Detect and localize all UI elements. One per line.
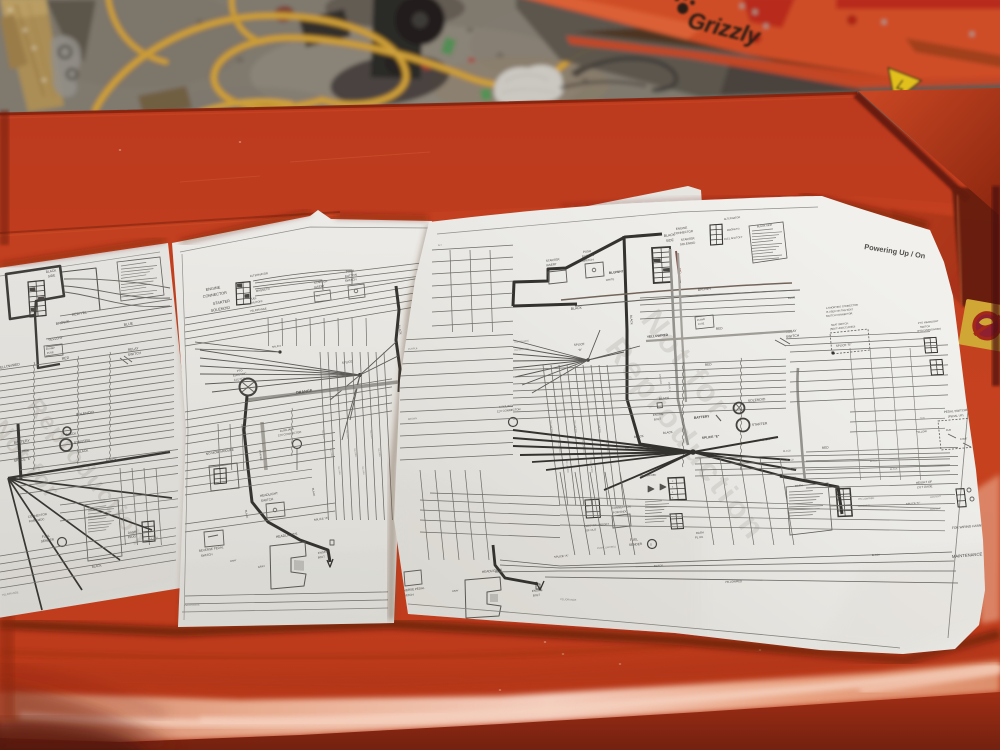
svg-text:BLACK: BLACK <box>890 467 898 471</box>
svg-text:"D": "D" <box>578 348 582 352</box>
svg-text:BOLT: BOLT <box>533 593 541 598</box>
svg-text:BLACK: BLACK <box>789 467 798 471</box>
svg-text:RED: RED <box>822 445 830 450</box>
svg-text:RUN: RUN <box>946 429 952 432</box>
svg-text:BLACK: BLACK <box>872 553 880 557</box>
svg-text:BLACK: BLACK <box>629 315 634 325</box>
svg-text:BLACK: BLACK <box>787 475 797 480</box>
svg-text:PL UG: PL UG <box>695 535 704 540</box>
svg-text:BLACK: BLACK <box>654 563 664 568</box>
svg-text:BLACK: BLACK <box>783 449 792 453</box>
svg-text:DASH: DASH <box>795 483 803 488</box>
svg-text:BOLT: BOLT <box>654 417 662 422</box>
svg-text:S: S <box>650 543 652 547</box>
svg-text:TAN: TAN <box>920 417 925 420</box>
svg-text:BLACK: BLACK <box>870 459 878 463</box>
svg-text:BLACK: BLACK <box>786 458 795 462</box>
svg-text:YEL/ORANGE: YEL/ORANGE <box>184 603 200 607</box>
svg-text:FUEL: FUEL <box>630 537 639 542</box>
